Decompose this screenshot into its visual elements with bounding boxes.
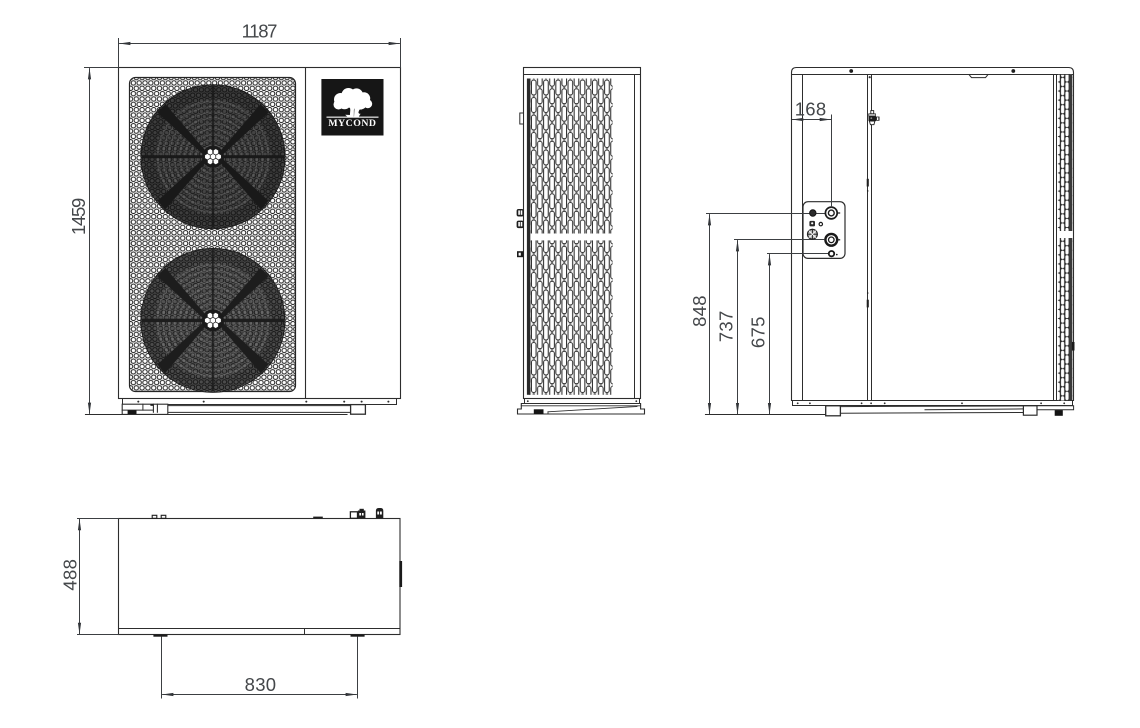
svg-text:168: 168 xyxy=(795,98,827,119)
svg-text:488: 488 xyxy=(60,559,81,591)
svg-text:1187: 1187 xyxy=(242,21,278,42)
svg-text:737: 737 xyxy=(715,310,736,342)
svg-text:1459: 1459 xyxy=(68,198,89,235)
svg-text:830: 830 xyxy=(245,674,277,695)
svg-text:675: 675 xyxy=(748,316,769,348)
svg-text:848: 848 xyxy=(689,295,710,327)
svg-text:MYCOND: MYCOND xyxy=(328,118,376,129)
